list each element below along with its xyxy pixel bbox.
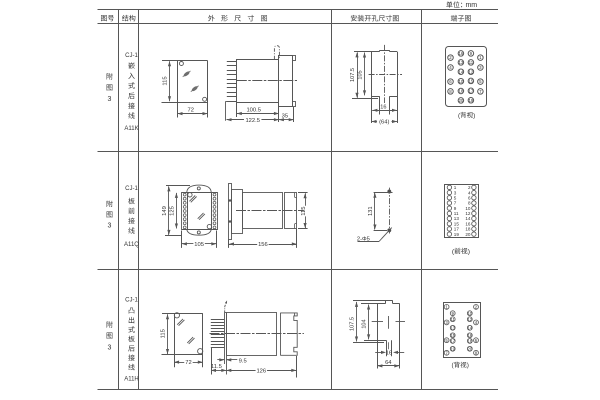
svg-text:(: ( <box>458 112 461 119</box>
svg-text:16: 16 <box>380 105 386 111</box>
svg-text:156: 156 <box>258 242 268 248</box>
svg-text:8: 8 <box>449 89 452 94</box>
svg-text:11.5: 11.5 <box>211 364 222 370</box>
svg-text:12: 12 <box>468 69 473 74</box>
svg-text:4: 4 <box>449 65 452 70</box>
svg-text:19: 19 <box>454 232 460 237</box>
svg-text:13: 13 <box>458 60 463 65</box>
svg-text:100.5: 100.5 <box>246 108 261 114</box>
svg-text:(64): (64) <box>379 120 389 126</box>
svg-text:10: 10 <box>458 79 463 84</box>
svg-text:105: 105 <box>194 242 204 248</box>
svg-text:3: 3 <box>108 222 112 229</box>
svg-text:122.5: 122.5 <box>245 118 260 124</box>
svg-text:10: 10 <box>467 311 472 316</box>
svg-text:19: 19 <box>450 346 455 351</box>
svg-text:15: 15 <box>468 78 473 83</box>
svg-text:105: 105 <box>358 70 364 79</box>
svg-text:3: 3 <box>108 345 112 352</box>
svg-text:6: 6 <box>449 79 452 84</box>
svg-text:17: 17 <box>468 88 473 93</box>
svg-text:3: 3 <box>479 65 482 70</box>
svg-text:3: 3 <box>108 96 112 103</box>
svg-text:5: 5 <box>479 79 482 84</box>
svg-text:107.5: 107.5 <box>350 317 356 331</box>
svg-text:35: 35 <box>282 113 288 119</box>
svg-text:): ) <box>473 112 475 119</box>
svg-text:17: 17 <box>450 339 455 344</box>
svg-text:CJ-1: CJ-1 <box>125 186 138 192</box>
svg-text:11: 11 <box>469 60 474 65</box>
svg-text:): ) <box>468 249 470 256</box>
svg-text:2: 2 <box>449 55 452 60</box>
svg-text:15: 15 <box>450 333 455 338</box>
svg-text:20: 20 <box>458 98 463 103</box>
svg-text:A11Q: A11Q <box>124 242 139 248</box>
svg-text:12: 12 <box>467 317 472 322</box>
svg-text:125: 125 <box>170 206 176 216</box>
svg-text:104: 104 <box>362 319 368 328</box>
svg-text:7: 7 <box>479 89 482 94</box>
svg-text:72: 72 <box>187 107 193 113</box>
svg-text:107.5: 107.5 <box>350 68 356 82</box>
svg-text:115: 115 <box>301 206 307 215</box>
svg-text:115: 115 <box>161 329 167 338</box>
svg-text:A11H: A11H <box>124 377 139 383</box>
svg-text:131: 131 <box>368 206 374 216</box>
svg-text:14: 14 <box>458 69 463 74</box>
svg-text:149: 149 <box>162 206 168 216</box>
svg-text:(: ( <box>452 249 455 256</box>
svg-text:A11K: A11K <box>124 126 138 132</box>
svg-text:m: m <box>471 2 477 9</box>
svg-text:115: 115 <box>162 76 168 85</box>
svg-text:16: 16 <box>458 51 463 56</box>
svg-text:): ) <box>467 362 469 369</box>
svg-text:18: 18 <box>458 89 463 94</box>
svg-text:18: 18 <box>467 339 472 344</box>
svg-text:20: 20 <box>465 232 471 237</box>
svg-text:CJ-1: CJ-1 <box>125 298 138 304</box>
svg-text:19: 19 <box>468 98 473 103</box>
svg-text:64: 64 <box>385 360 392 366</box>
svg-text:2-Φ5: 2-Φ5 <box>357 236 370 242</box>
svg-text:1: 1 <box>479 55 482 60</box>
svg-text:9: 9 <box>470 51 473 56</box>
svg-text:11: 11 <box>450 317 455 322</box>
svg-text:16: 16 <box>386 351 392 357</box>
svg-text:(: ( <box>452 362 455 369</box>
svg-text:72: 72 <box>185 360 191 366</box>
svg-text:20: 20 <box>467 346 472 351</box>
svg-text:126: 126 <box>256 368 266 374</box>
svg-text:16: 16 <box>467 333 472 338</box>
svg-text:9.5: 9.5 <box>239 358 247 364</box>
svg-text:14: 14 <box>467 325 472 330</box>
svg-text:13: 13 <box>450 325 455 330</box>
svg-text:CJ-1: CJ-1 <box>125 53 138 59</box>
